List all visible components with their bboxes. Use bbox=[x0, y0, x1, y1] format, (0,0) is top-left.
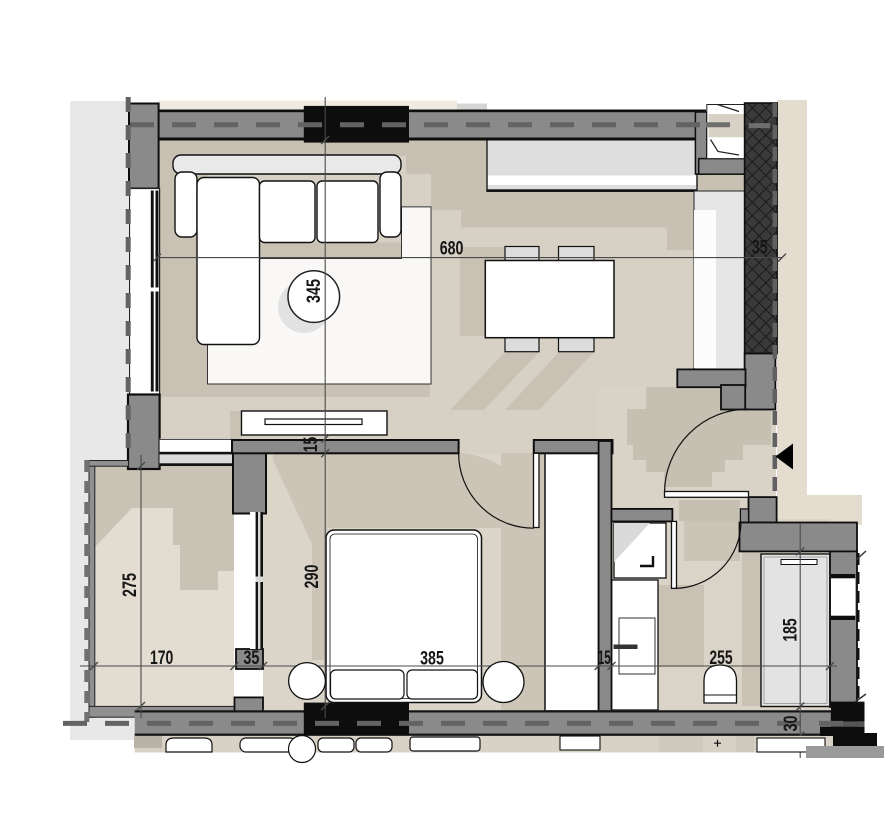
svg-text:385: 385 bbox=[420, 649, 444, 670]
svg-text:680: 680 bbox=[440, 239, 464, 260]
svg-text:290: 290 bbox=[302, 565, 323, 589]
svg-text:255: 255 bbox=[709, 648, 733, 669]
svg-text:275: 275 bbox=[120, 573, 141, 597]
svg-text:15: 15 bbox=[598, 648, 611, 669]
svg-text:15: 15 bbox=[301, 436, 322, 452]
svg-text:185: 185 bbox=[781, 618, 802, 642]
svg-text:345: 345 bbox=[304, 279, 325, 303]
svg-text:30: 30 bbox=[781, 716, 802, 732]
svg-text:35: 35 bbox=[243, 648, 259, 669]
svg-text:170: 170 bbox=[150, 648, 173, 669]
svg-text:35: 35 bbox=[752, 238, 768, 259]
